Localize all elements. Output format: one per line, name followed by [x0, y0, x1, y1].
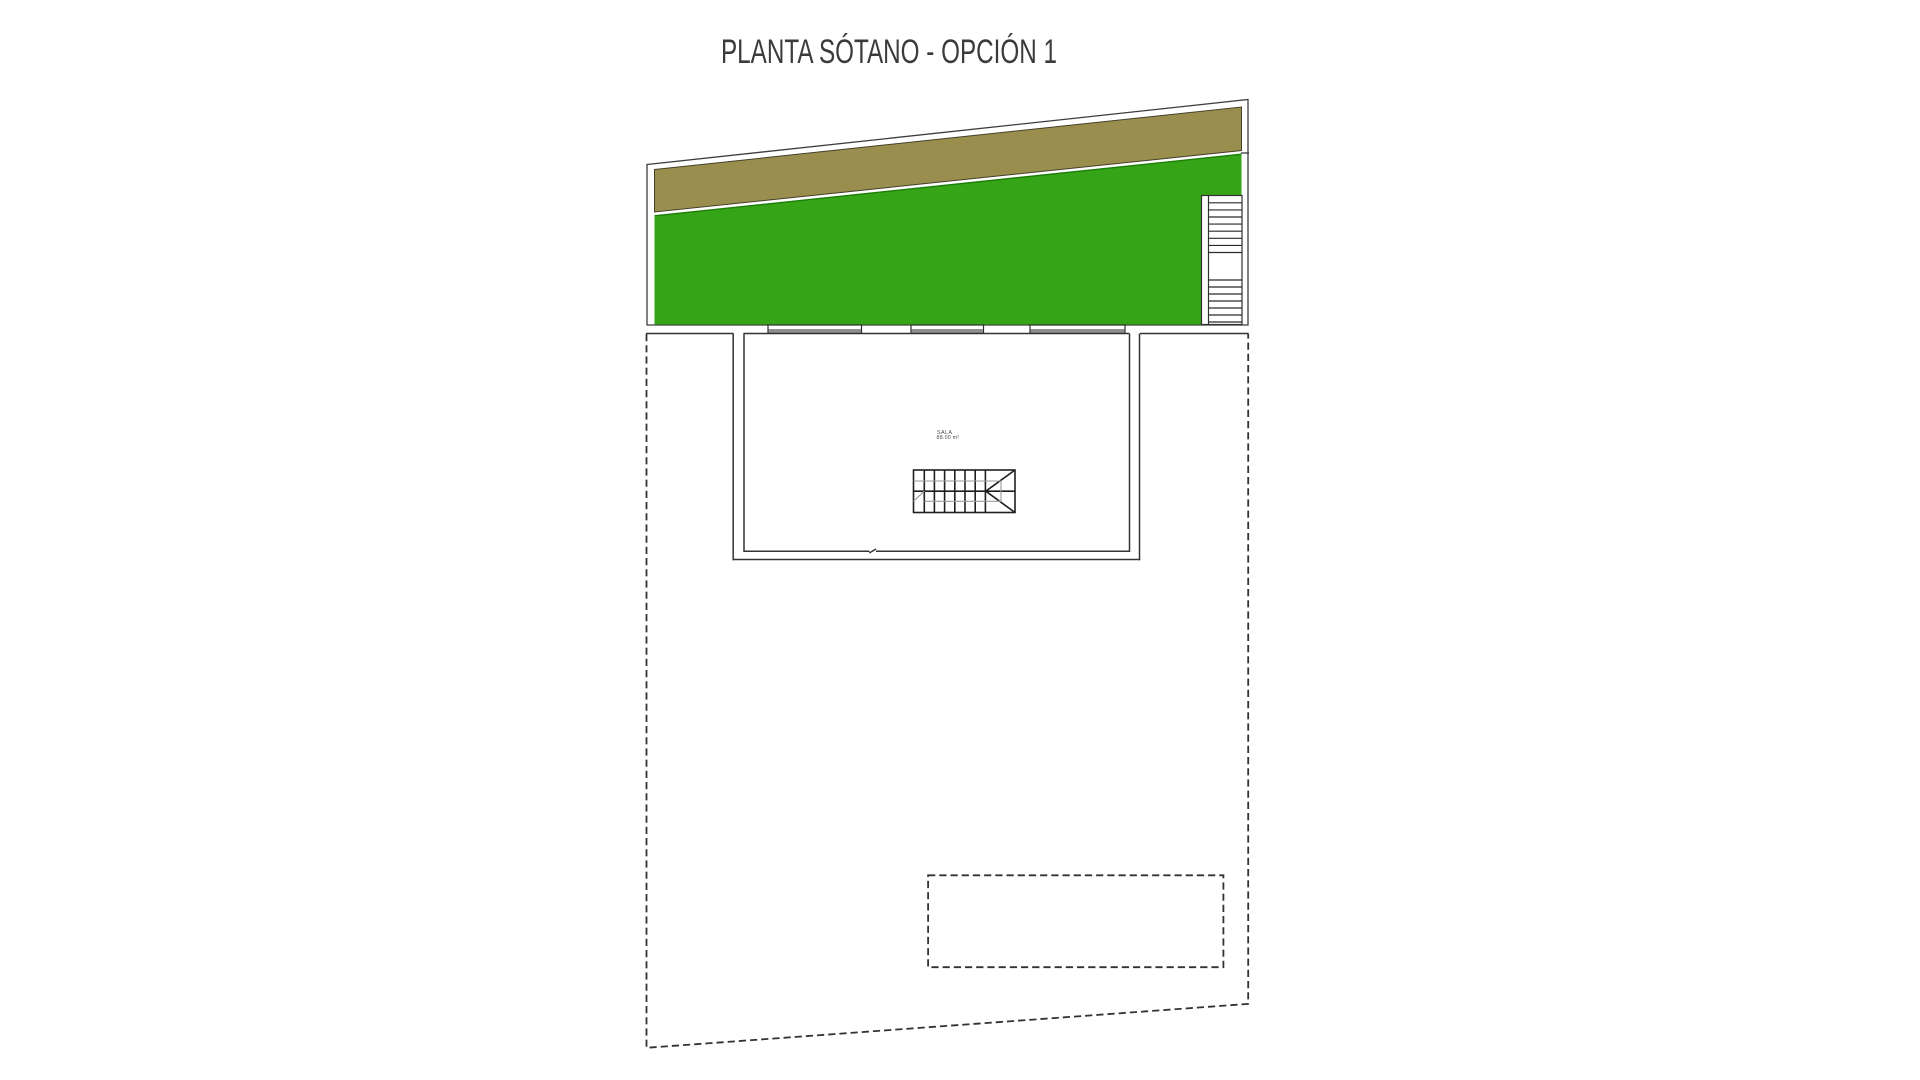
- svg-text:88.00 m²: 88.00 m²: [937, 435, 960, 441]
- svg-text:PLANTA SÓTANO - OPCIÓN 1: PLANTA SÓTANO - OPCIÓN 1: [721, 33, 1057, 71]
